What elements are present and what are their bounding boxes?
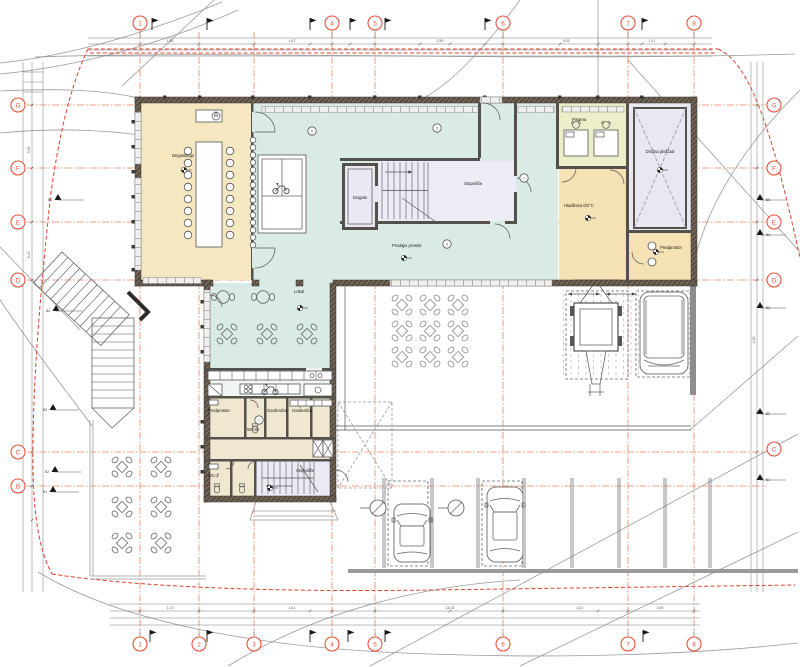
sales-counter xyxy=(258,155,306,233)
benchmark-label: B1 xyxy=(766,478,770,482)
benchmark-label: B1 xyxy=(43,490,47,494)
svg-text:5: 5 xyxy=(373,20,377,27)
benchmark-label: B3 xyxy=(766,306,770,310)
label-stopnisce2: Stopnišče xyxy=(296,468,315,473)
grid-marker-left-G: G xyxy=(11,98,25,112)
dim-top-4: 3,03 xyxy=(563,39,570,43)
label-ploscad: Dvižna ploščad xyxy=(646,149,675,154)
grid-marker-bottom-7: 7 xyxy=(621,629,635,651)
table-4seat xyxy=(150,532,172,554)
label-predprostor: Predprostor xyxy=(660,245,682,250)
svg-text:E: E xyxy=(16,219,20,226)
outdoor-stairs-west xyxy=(33,252,148,428)
svg-text:7: 7 xyxy=(626,20,630,27)
room-lokal xyxy=(207,283,333,368)
room-stopnisce-lower xyxy=(256,461,332,496)
svg-text:G: G xyxy=(16,102,21,109)
sink xyxy=(209,464,218,469)
grid-marker-bottom-1: 1 xyxy=(133,629,147,651)
room-predprostor-se xyxy=(629,233,691,280)
benchmark-label: B2 xyxy=(45,470,49,474)
benchmarks-right: B5 B4 B3 B2 B1 xyxy=(757,194,787,482)
benchmark-label: B4 xyxy=(46,309,50,313)
grid-marker-top-1: 1 xyxy=(133,16,147,38)
svg-text:G: G xyxy=(772,102,777,109)
grid-marker-bottom-5: 5 xyxy=(368,629,382,651)
grid-marker-left-E: E xyxy=(11,215,25,229)
label-hladilnica: Hladilnica 0/2°C xyxy=(564,203,594,208)
grid-marker-right-E: E xyxy=(767,215,781,229)
svg-text:F: F xyxy=(772,165,776,172)
terrace-southwest xyxy=(90,420,206,579)
grid-marker-top-4: 4 xyxy=(325,16,339,38)
svg-text:4: 4 xyxy=(330,641,334,648)
dim-top-3: 2,50 xyxy=(437,39,444,43)
dim-top-1: 1,50 xyxy=(167,39,174,43)
curb xyxy=(348,569,798,573)
svg-text:D: D xyxy=(772,277,777,284)
svg-text:4: 4 xyxy=(330,20,334,27)
svg-text:C: C xyxy=(772,446,777,453)
car-1 xyxy=(392,504,432,562)
dim-bottom-4: 4,47 xyxy=(577,606,584,610)
svg-text:8: 8 xyxy=(692,641,696,648)
svg-text:1: 1 xyxy=(138,20,142,27)
label-degustacija: Degustacija xyxy=(172,153,195,158)
dim-bottom-5: 3,50 xyxy=(657,606,664,610)
grid-marker-bottom-3: 3 xyxy=(247,629,261,651)
svg-text:1: 1 xyxy=(138,641,142,648)
svg-text:8: 8 xyxy=(692,20,696,27)
svg-text:C: C xyxy=(16,449,21,456)
grid-marker-right-D: D xyxy=(767,273,781,287)
car-2 xyxy=(485,487,525,562)
dim-left-1: 3,50 xyxy=(27,147,31,154)
grid-marker-top-6: 6 xyxy=(496,16,510,38)
benchmark-label: B5 xyxy=(48,198,52,202)
label-lokal: Lokal xyxy=(294,289,304,294)
parking-area xyxy=(348,478,798,573)
grid-marker-bottom-6: 6 xyxy=(496,629,510,651)
grid-marker-right-G: G xyxy=(767,98,781,112)
svg-text:B: B xyxy=(16,483,20,490)
grid-marker-left-B: B xyxy=(11,479,25,493)
grid-marker-bottom-2: 2 xyxy=(192,629,206,651)
benchmark-label: B4 xyxy=(766,233,770,237)
dim-right-1: 4,25 xyxy=(752,337,756,344)
dim-bottom-1: 1,17 xyxy=(167,606,174,610)
floor-plan-drawing: 1,50 4,47 2,50 3,03 1,17 1,17 4,41 14,02… xyxy=(0,0,800,667)
grid-marker-right-C: C xyxy=(767,442,781,456)
grid-marker-left-D: D xyxy=(11,273,25,287)
benchmark-label: B5 xyxy=(766,198,770,202)
stair-lobby xyxy=(378,161,516,221)
door-tag: 3 xyxy=(436,127,438,131)
terrace-middle xyxy=(391,294,469,368)
table-4seat xyxy=(150,456,172,478)
door-tag: 6 xyxy=(446,243,448,247)
no-parking-sign xyxy=(438,500,464,516)
svg-text:7: 7 xyxy=(626,641,630,648)
label-wc-m: WC-M xyxy=(247,427,259,432)
svg-text:6: 6 xyxy=(501,20,505,27)
label-stopnisce: Stopnišče xyxy=(464,181,483,186)
delivery-van xyxy=(640,292,688,374)
table-4seat xyxy=(150,496,172,518)
label-wc-z: WC-Ž xyxy=(208,473,219,478)
sink xyxy=(209,400,218,405)
label-dvigalo: Dvigalo xyxy=(353,195,368,200)
label-predprostor2: Predprostor xyxy=(208,408,230,413)
grid-marker-bottom-4: 4 xyxy=(325,629,339,651)
benchmark-label: B2 xyxy=(766,412,770,416)
label-garderoba2: Garderoba xyxy=(292,408,313,413)
retaining-wall xyxy=(690,285,696,395)
table-4seat xyxy=(111,456,133,478)
grid-marker-top-5: 5 xyxy=(368,16,382,38)
door-tag: 1 xyxy=(258,419,260,423)
grid-marker-left-C: C xyxy=(11,445,25,459)
dim-top-2: 4,47 xyxy=(289,39,296,43)
glass-partition-columns xyxy=(250,137,256,248)
dim-bottom-3: 14,02 xyxy=(446,606,455,610)
grid-marker-top-7: 7 xyxy=(621,16,635,38)
svg-text:6: 6 xyxy=(501,641,505,648)
floor-plan-canvas: 1,50 4,47 2,50 3,03 1,17 1,17 4,41 14,02… xyxy=(0,0,800,667)
table-4seat xyxy=(111,496,133,518)
room-hladilnica xyxy=(559,169,626,280)
grid-marker-top-8: 8 xyxy=(687,16,701,38)
svg-text:E: E xyxy=(772,219,776,226)
dim-top-5: 1,17 xyxy=(649,39,656,43)
door-tag: 7 xyxy=(523,177,525,181)
benchmark-label: B3 xyxy=(43,408,47,412)
svg-text:3: 3 xyxy=(252,641,256,648)
grid-marker-right-F: F xyxy=(767,161,781,175)
label-pisarna: Pisarna xyxy=(572,117,587,122)
dim-left-2: 5,10 xyxy=(27,252,31,259)
door-tag: 5 xyxy=(311,130,313,134)
benchmarks-left: B5 B4 B3 B2 B1 xyxy=(43,194,84,494)
dim-bottom-2: 4,41 xyxy=(289,606,296,610)
svg-text:D: D xyxy=(16,277,21,284)
label-prodajni: Prodajni prostor xyxy=(392,243,422,248)
svg-text:F: F xyxy=(16,165,20,172)
grid-marker-bottom-8: 8 xyxy=(687,629,701,651)
grid-marker-left-F: F xyxy=(11,161,25,175)
label-garderoba: Garderoba xyxy=(267,408,288,413)
conference-table xyxy=(196,142,222,247)
svg-text:5: 5 xyxy=(373,641,377,648)
no-parking-sign xyxy=(360,500,386,516)
table-4seat xyxy=(111,532,133,554)
svg-text:2: 2 xyxy=(197,641,201,648)
